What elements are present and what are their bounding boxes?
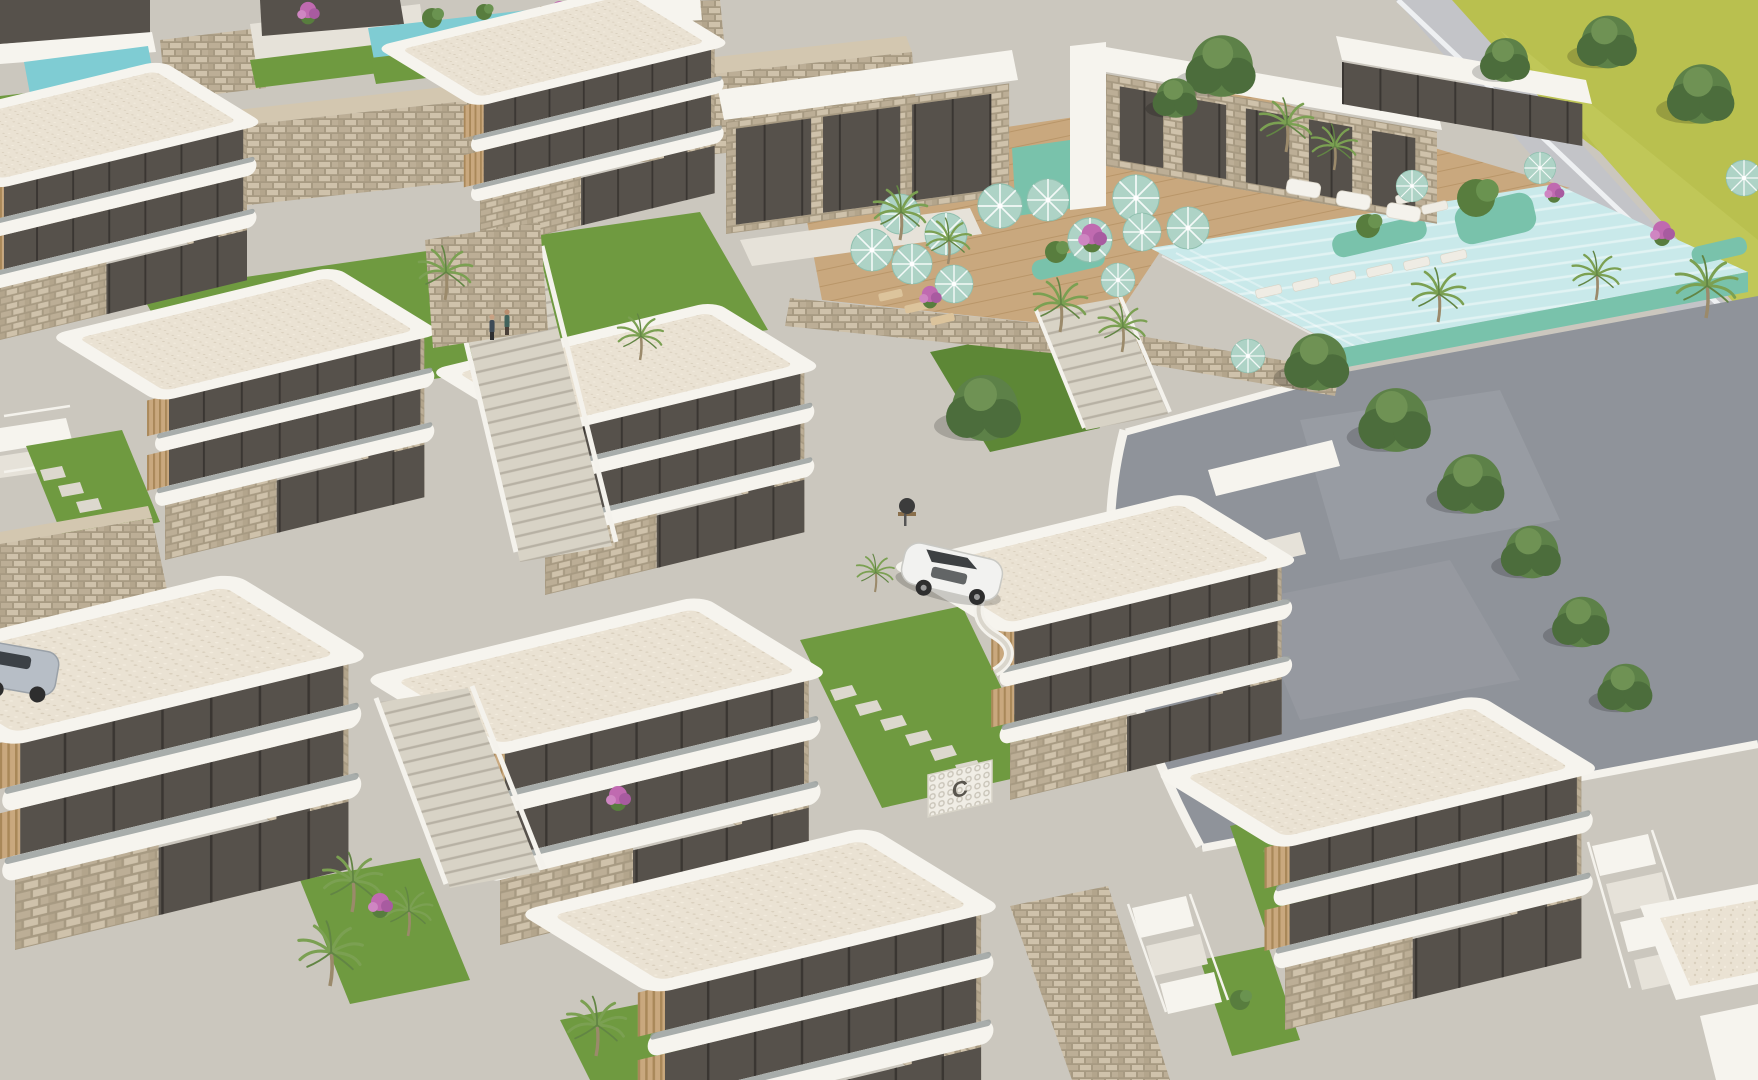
render-canvas: C xyxy=(0,0,1758,1080)
block-sign-label: C xyxy=(952,775,968,803)
scene: C xyxy=(0,0,1758,1080)
